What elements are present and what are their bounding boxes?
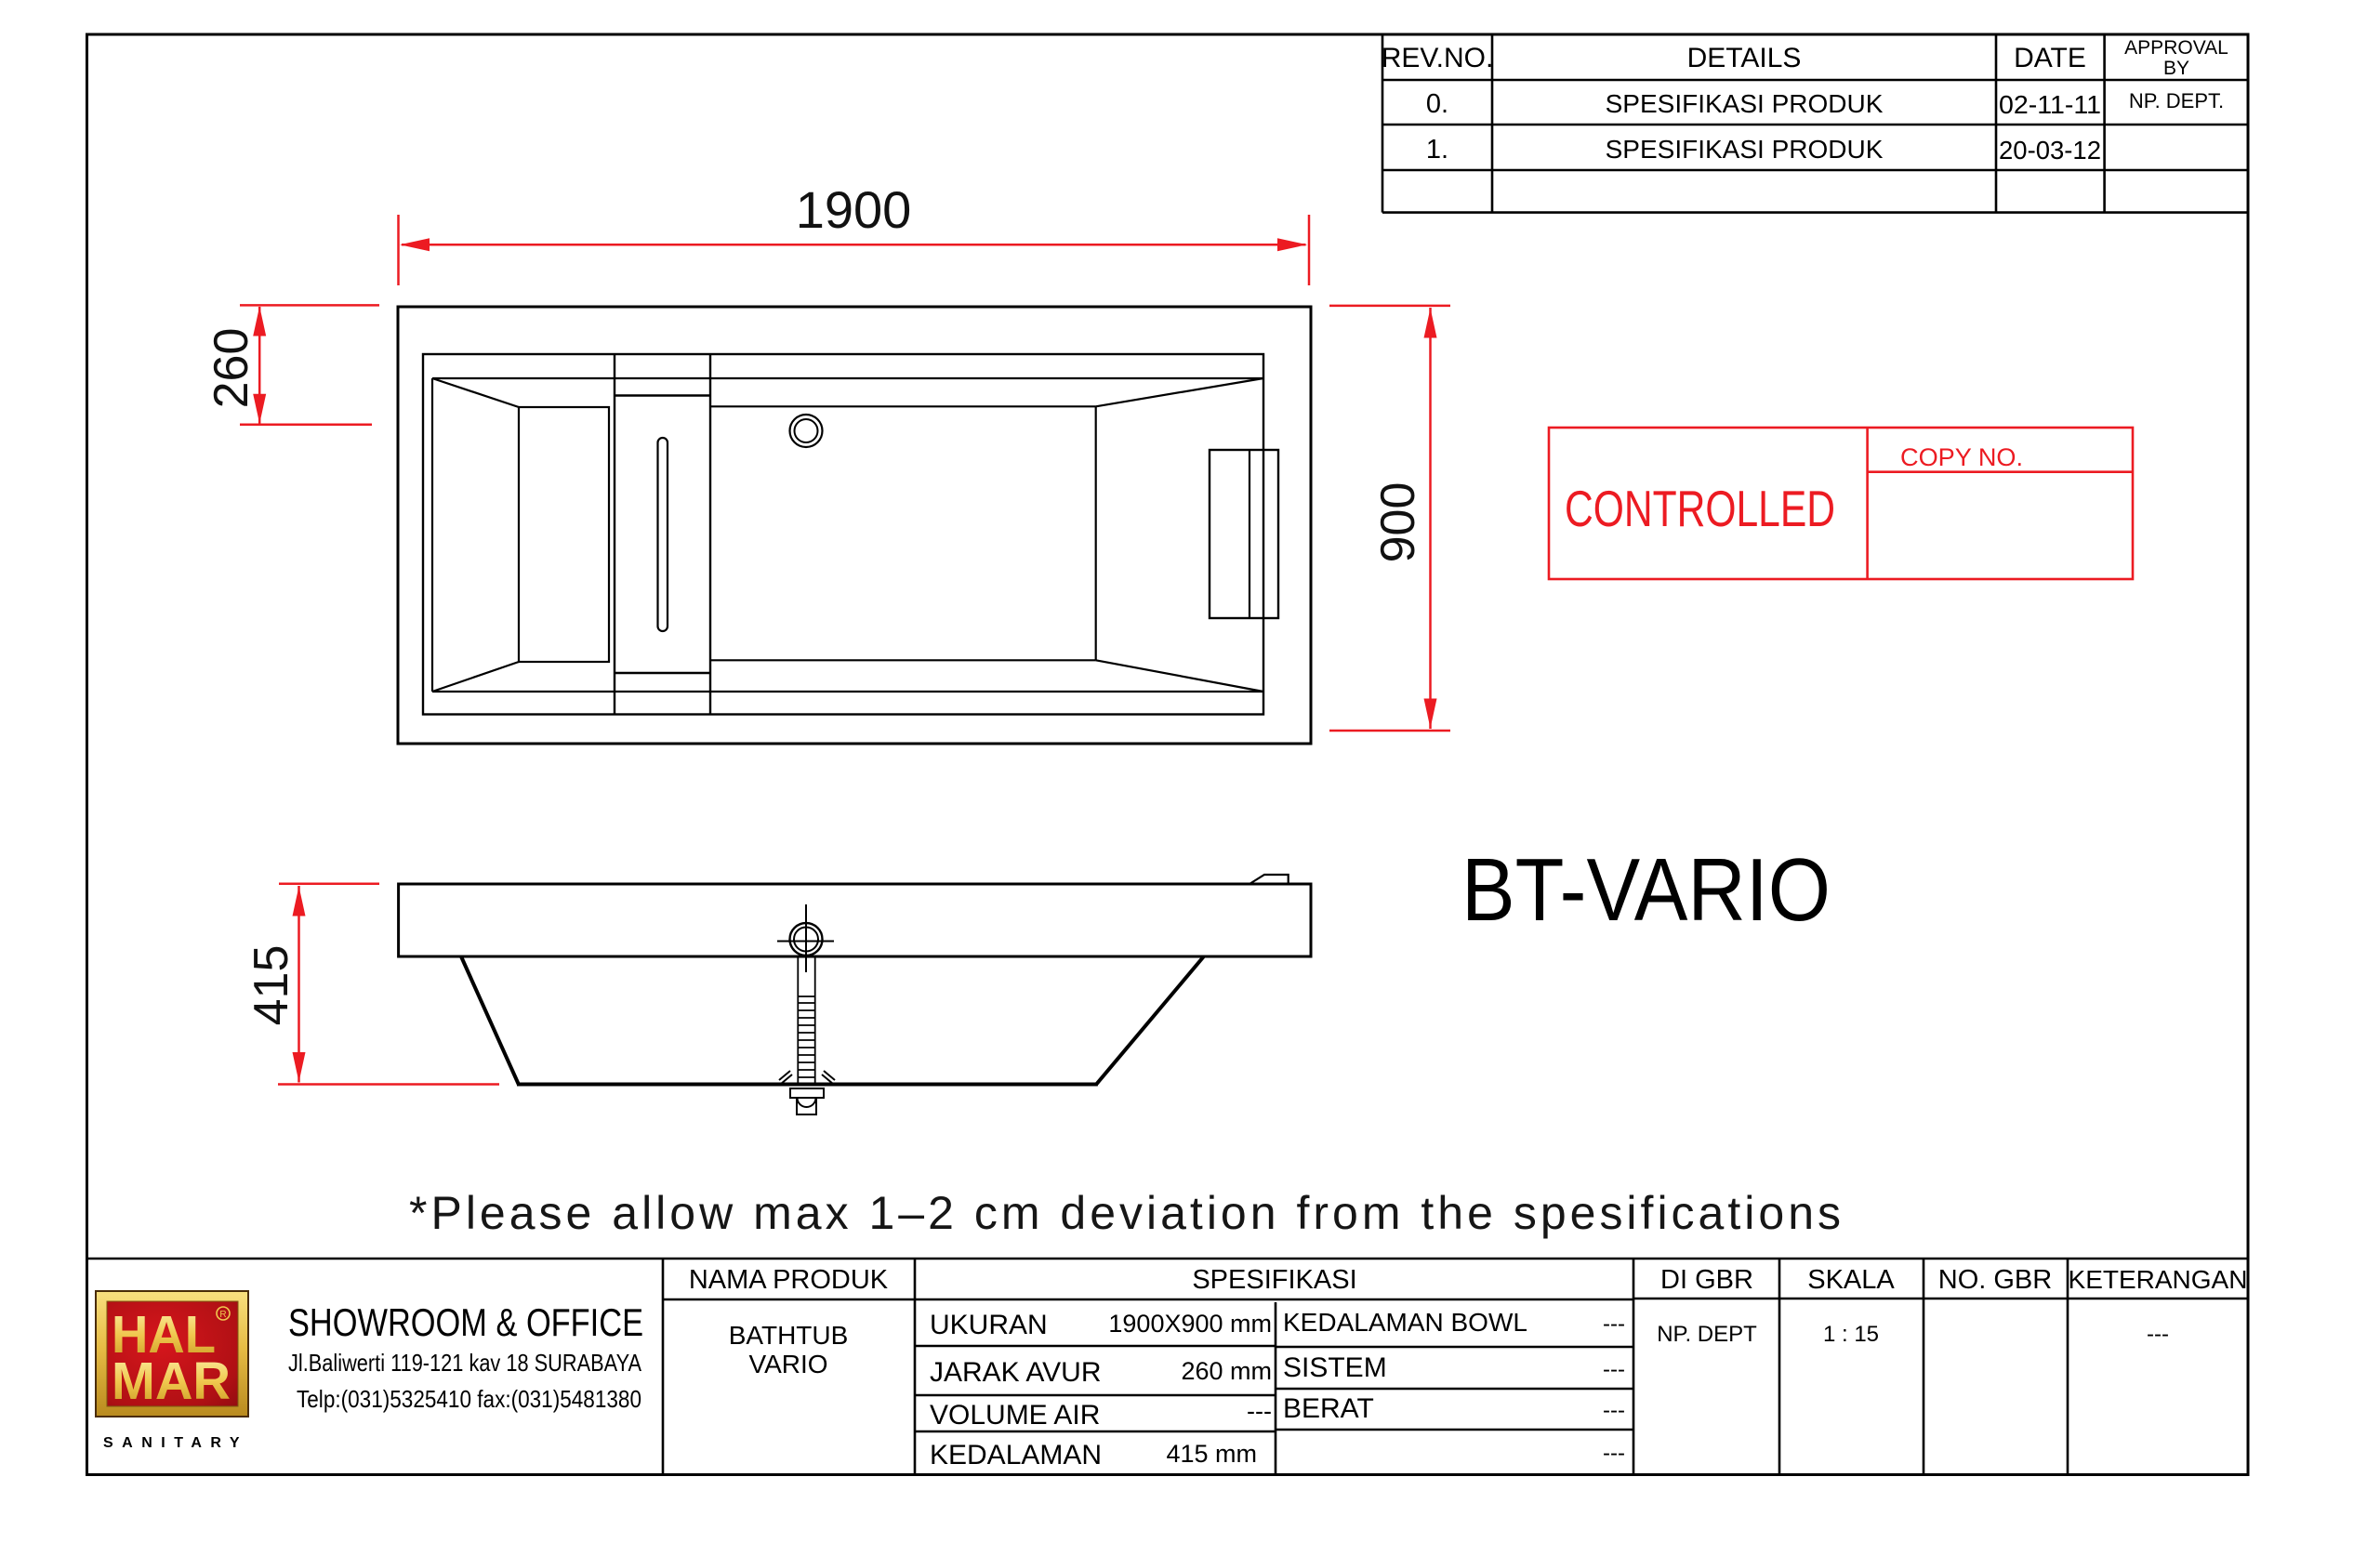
svg-text:NO. GBR: NO. GBR — [1938, 1265, 2052, 1295]
svg-text:02-11-11: 02-11-11 — [1999, 90, 2101, 119]
svg-text:---: --- — [1603, 1357, 1625, 1382]
svg-text:R: R — [219, 1310, 226, 1320]
svg-text:CONTROLLED: CONTROLLED — [1565, 480, 1835, 537]
svg-text:1 : 15: 1 : 15 — [1823, 1322, 1879, 1347]
svg-text:900: 900 — [1371, 482, 1425, 563]
svg-text:Jl.Baliwerti 119-121 kav 18 SU: Jl.Baliwerti 119-121 kav 18 SURABAYA — [288, 1349, 642, 1377]
svg-text:SKALA: SKALA — [1807, 1265, 1895, 1295]
svg-text:BERAT: BERAT — [1283, 1393, 1374, 1424]
svg-text:NP. DEPT.: NP. DEPT. — [2129, 89, 2224, 112]
svg-text:0.: 0. — [1426, 89, 1448, 119]
svg-text:---: --- — [2147, 1322, 2169, 1347]
svg-text:1.: 1. — [1426, 135, 1448, 165]
svg-text:20-03-12: 20-03-12 — [1999, 136, 2101, 165]
svg-text:KEDALAMAN BOWL: KEDALAMAN BOWL — [1283, 1308, 1527, 1337]
svg-text:KEDALAMAN: KEDALAMAN — [930, 1440, 1102, 1470]
svg-text:415 mm: 415 mm — [1166, 1440, 1257, 1468]
svg-text:APPROVAL: APPROVAL — [2124, 37, 2228, 59]
svg-text:VOLUME AIR: VOLUME AIR — [930, 1400, 1100, 1431]
svg-text:UKURAN: UKURAN — [930, 1310, 1048, 1340]
svg-text:DI GBR: DI GBR — [1660, 1265, 1753, 1295]
svg-text:BT-VARIO: BT-VARIO — [1461, 840, 1831, 940]
svg-text:SPESIFIKASI: SPESIFIKASI — [1192, 1265, 1356, 1295]
svg-text:Telp:(031)5325410 fax:(031)548: Telp:(031)5325410 fax:(031)5481380 — [297, 1385, 641, 1413]
svg-text:1900: 1900 — [796, 180, 912, 239]
svg-text:NAMA PRODUK: NAMA PRODUK — [689, 1265, 889, 1295]
svg-text:JARAK AVUR: JARAK AVUR — [930, 1357, 1102, 1388]
svg-text:---: --- — [1247, 1397, 1272, 1425]
svg-text:SHOWROOM & OFFICE: SHOWROOM & OFFICE — [288, 1300, 643, 1344]
svg-text:VARIO: VARIO — [748, 1350, 827, 1378]
svg-text:260 mm: 260 mm — [1181, 1357, 1272, 1385]
svg-text:REV.NO.: REV.NO. — [1382, 43, 1494, 73]
svg-text:---: --- — [1603, 1312, 1625, 1337]
svg-text:DETAILS: DETAILS — [1687, 43, 1802, 73]
svg-text:---: --- — [1603, 1398, 1625, 1423]
svg-text:415: 415 — [245, 945, 298, 1026]
svg-text:DATE: DATE — [2014, 43, 2086, 73]
svg-text:260: 260 — [205, 328, 258, 409]
svg-text:*Please allow max 1–2 cm devia: *Please allow max 1–2 cm deviation from … — [409, 1187, 1841, 1239]
svg-text:KETERANGAN: KETERANGAN — [2069, 1265, 2248, 1294]
svg-text:---: --- — [1603, 1441, 1625, 1466]
svg-text:COPY NO.: COPY NO. — [1900, 443, 2023, 471]
svg-text:MAR: MAR — [112, 1352, 231, 1411]
svg-text:BATHTUB: BATHTUB — [729, 1321, 849, 1350]
svg-text:SANITARY: SANITARY — [103, 1435, 248, 1451]
svg-text:BY: BY — [2163, 58, 2189, 79]
svg-text:1900X900 mm: 1900X900 mm — [1108, 1310, 1272, 1338]
svg-text:NP. DEPT: NP. DEPT — [1657, 1322, 1757, 1347]
svg-text:SPESIFIKASI PRODUK: SPESIFIKASI PRODUK — [1606, 135, 1884, 164]
svg-text:SISTEM: SISTEM — [1283, 1352, 1387, 1383]
svg-text:SPESIFIKASI PRODUK: SPESIFIKASI PRODUK — [1606, 89, 1884, 118]
